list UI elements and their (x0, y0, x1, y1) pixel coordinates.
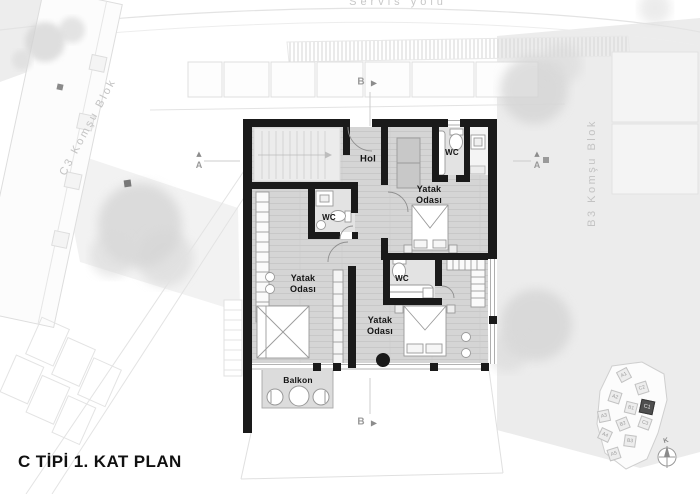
keyplan-block-highlighted: C1 (639, 399, 656, 416)
floor-plan-sheet: Servis yolu C3 Komşu Blok B3 Komşu Blok … (0, 0, 700, 494)
room-label-bedroom-bottom: Yatak Odası (367, 315, 393, 337)
section-b-bottom-label: B (357, 417, 364, 428)
section-b-top-label: B (357, 77, 364, 88)
room-label-bedroom-left: Yatak Odası (290, 273, 316, 295)
road-label: Servis yolu (349, 0, 447, 8)
sheet-title: C TİPİ 1. KAT PLAN (18, 452, 182, 472)
section-a-right-arrow-icon: ▲ (534, 150, 539, 158)
section-a-right-label: A (534, 160, 541, 170)
room-label-bedroom-top: Yatak Odası (416, 184, 442, 206)
room-label-hall: Hol (360, 153, 376, 164)
site-plan-graphics (0, 0, 700, 494)
section-b-top-arrow-icon: ▶ (371, 79, 377, 88)
room-label-wc-left: WC (322, 213, 336, 223)
room-label-wc-bottom: WC (395, 274, 409, 284)
room-label-wc-top: WC (445, 148, 459, 158)
room-label-balcony: Balkon (283, 375, 313, 385)
section-b-bottom-arrow-icon: ▶ (371, 419, 377, 428)
section-a-left-label: A (196, 160, 203, 170)
keyplan-block: A3 (597, 409, 611, 423)
keyplan-block: B3 (623, 434, 637, 448)
neighbor-block-right-label: B3 Komşu Blok (586, 119, 598, 227)
section-a-left-arrow-icon: ▲ (196, 150, 201, 158)
